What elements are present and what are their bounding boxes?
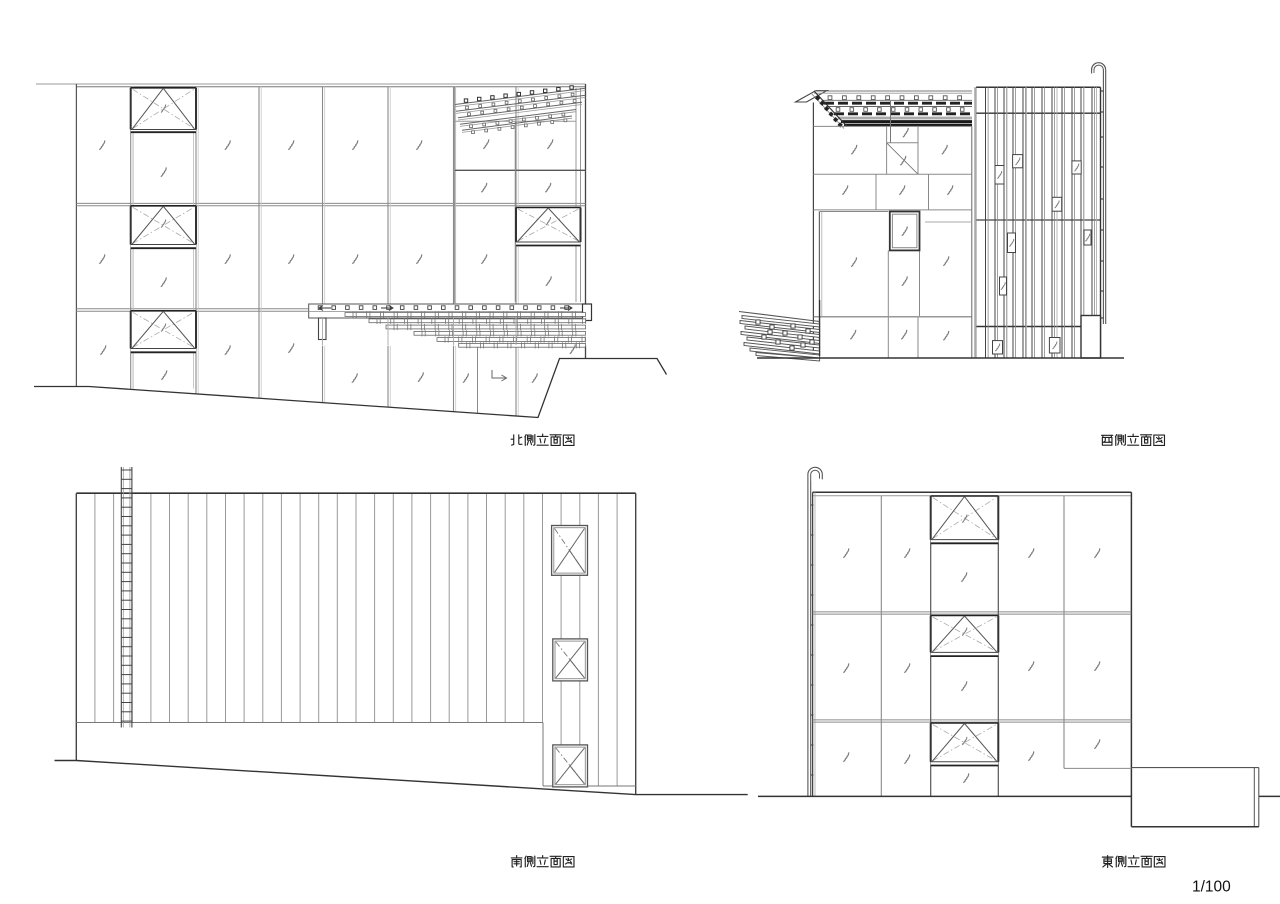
svg-text:1/100: 1/100 <box>1192 879 1231 896</box>
